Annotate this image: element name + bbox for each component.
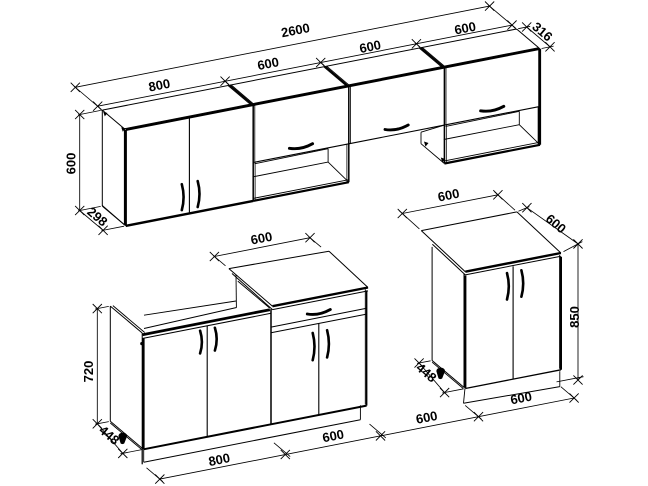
svg-text:850: 850 (567, 306, 582, 328)
svg-text:600: 600 (64, 153, 79, 175)
svg-text:720: 720 (81, 361, 96, 383)
